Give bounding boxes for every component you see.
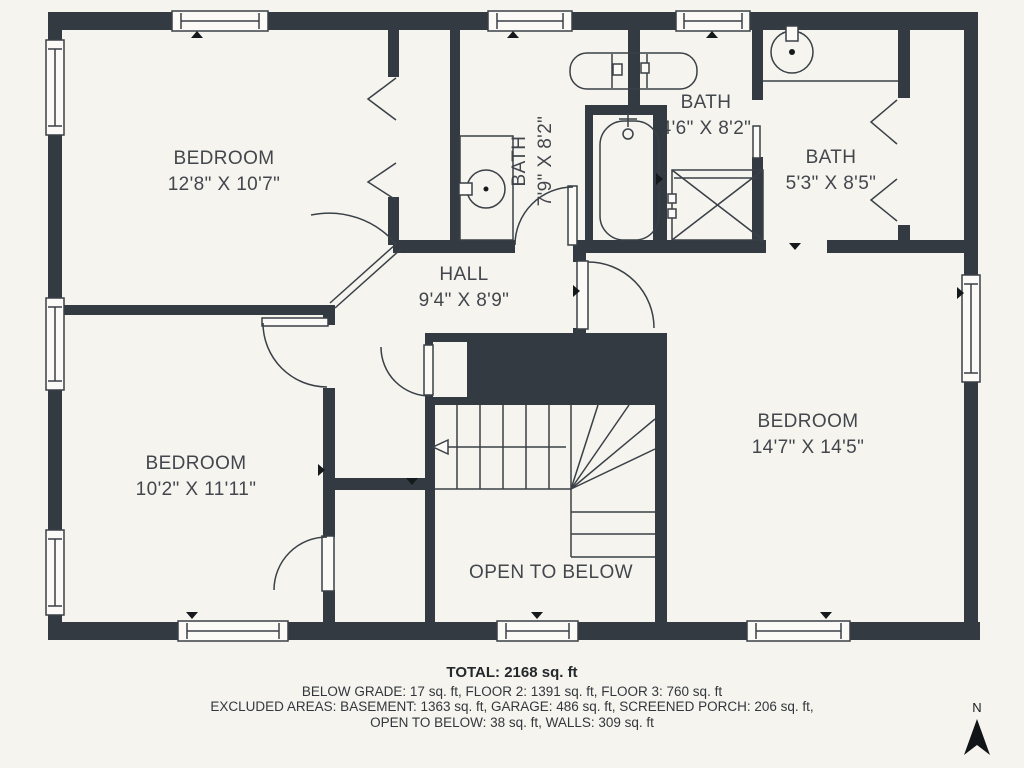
room-dims: 7'9" X 8'2"	[533, 116, 559, 207]
room-name: BATH	[661, 90, 752, 116]
room-label-bath-1: BATH 7'9" X 8'2"	[507, 116, 559, 207]
room-label-bedroom-3: BEDROOM 14'7" X 14'5"	[752, 409, 865, 461]
room-name: BATH	[786, 145, 877, 171]
room-dims: 4'6" X 8'2"	[661, 116, 752, 142]
area-line: BELOW GRADE: 17 sq. ft, FLOOR 2: 1391 sq…	[0, 684, 1024, 700]
room-dims: 10'2" X 11'11"	[136, 477, 257, 503]
floor-plan: BEDROOM 12'8" X 10'7" BATH 7'9" X 8'2" B…	[0, 0, 1024, 768]
area-line: EXCLUDED AREAS: BASEMENT: 1363 sq. ft, G…	[0, 699, 1024, 715]
room-name: HALL	[419, 262, 510, 288]
area-line: OPEN TO BELOW: 38 sq. ft, WALLS: 309 sq.…	[0, 715, 1024, 731]
room-label-bedroom-1: BEDROOM 12'8" X 10'7"	[168, 146, 281, 198]
north-arrow-icon	[963, 717, 991, 757]
double-vanity-icon	[570, 53, 697, 89]
interior-walls	[48, 12, 964, 622]
room-label-open-to-below: OPEN TO BELOW	[469, 560, 633, 586]
room-dims: 14'7" X 14'5"	[752, 435, 865, 461]
outer-walls	[48, 12, 980, 640]
area-summary: TOTAL: 2168 sq. ft BELOW GRADE: 17 sq. f…	[0, 665, 1024, 730]
stair-direction-arrow	[433, 440, 448, 454]
room-dims: 12'8" X 10'7"	[168, 172, 281, 198]
marker-triangles	[186, 31, 964, 619]
sink-icon	[459, 136, 513, 240]
room-name: BEDROOM	[752, 409, 865, 435]
room-dims: 9'4" X 8'9"	[419, 288, 510, 314]
room-name: OPEN TO BELOW	[469, 560, 633, 586]
compass-label: N	[972, 700, 981, 715]
window-symbols	[46, 11, 980, 641]
room-label-hall: HALL 9'4" X 8'9"	[419, 262, 510, 314]
room-name: BATH	[507, 116, 533, 207]
room-name: BEDROOM	[168, 146, 281, 172]
bathtub-icon	[600, 113, 659, 240]
room-label-bath-2: BATH 4'6" X 8'2"	[661, 90, 752, 142]
room-dims: 5'3" X 8'5"	[786, 171, 877, 197]
room-name: BEDROOM	[136, 451, 257, 477]
sink-icon-2	[763, 26, 898, 81]
stair-closet-niche	[433, 342, 467, 397]
stairs	[433, 405, 655, 557]
compass: N	[959, 701, 995, 757]
total-area: TOTAL: 2168 sq. ft	[0, 665, 1024, 681]
shower-icon	[668, 170, 763, 240]
room-label-bath-3: BATH 5'3" X 8'5"	[786, 145, 877, 197]
room-label-bedroom-2: BEDROOM 10'2" X 11'11"	[136, 451, 257, 503]
